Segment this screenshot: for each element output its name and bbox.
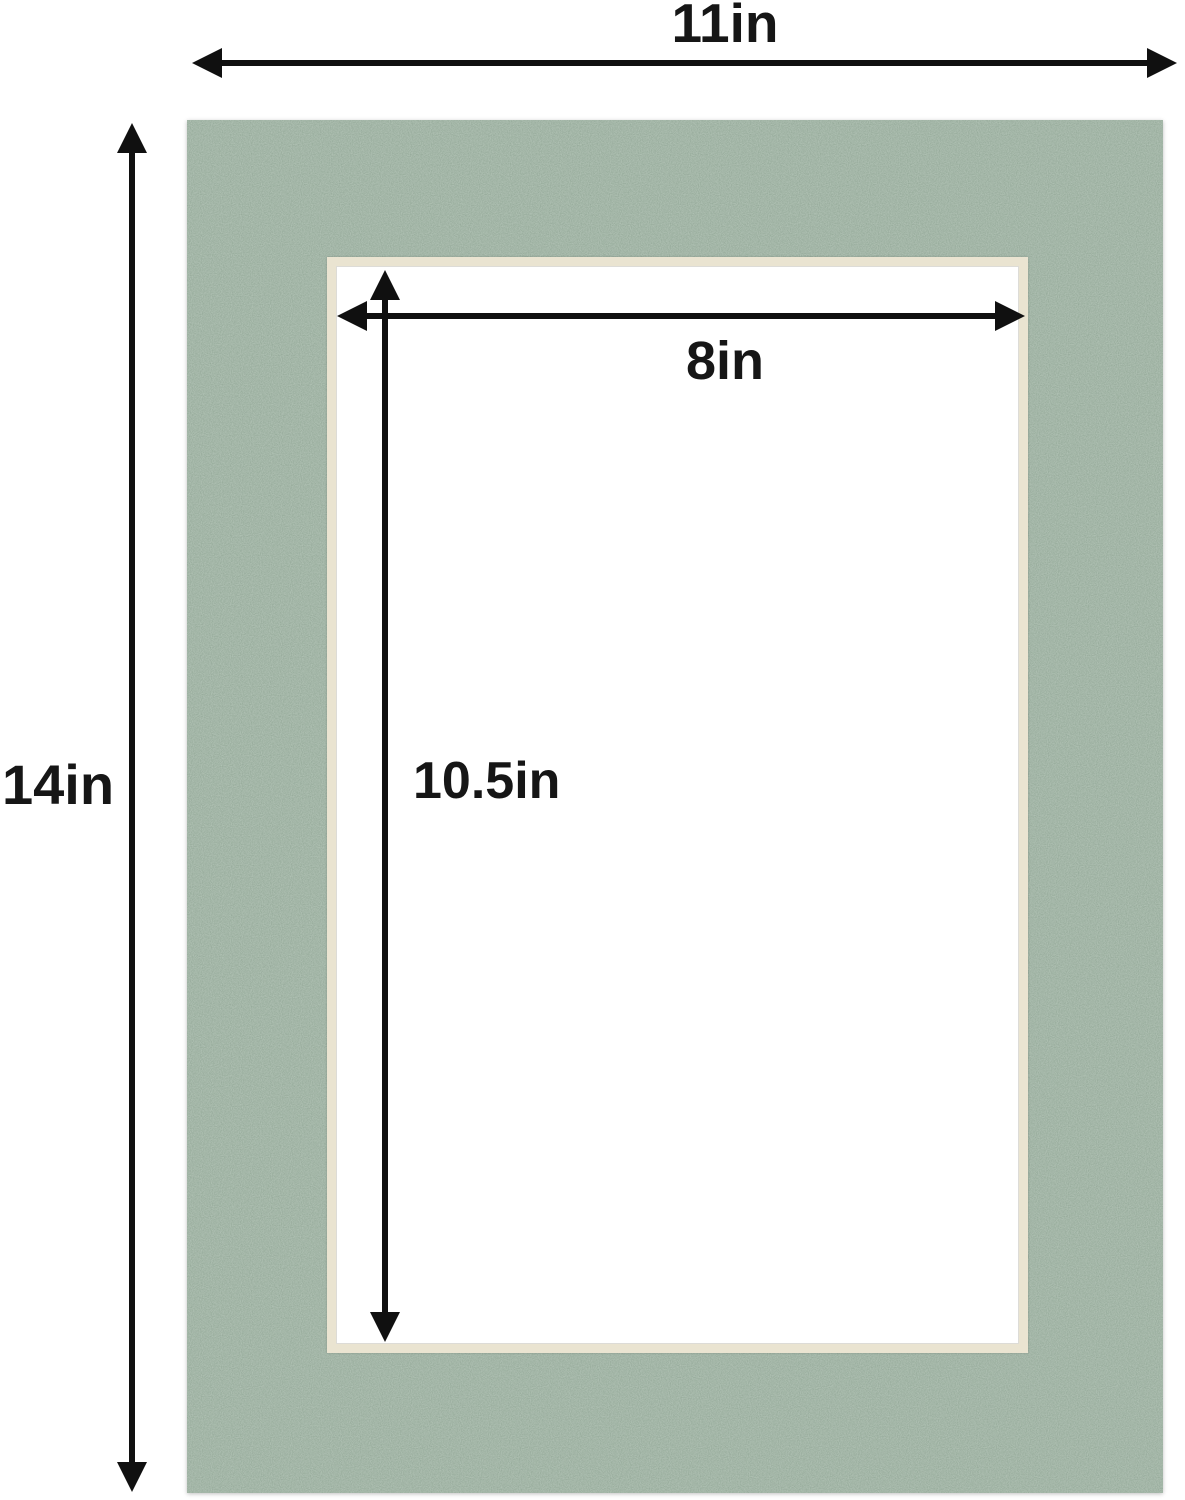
opening-width-label: 8in [575,334,875,388]
outer-height-label: 14in [2,757,114,813]
opening-height-label: 10.5in [413,755,560,807]
mat-board [187,120,1163,1493]
outer-width-label: 11in [575,0,875,51]
mat-dimension-diagram: 11in 14in 8in 10.5in [0,0,1185,1500]
outer-height-arrow [117,123,147,1492]
